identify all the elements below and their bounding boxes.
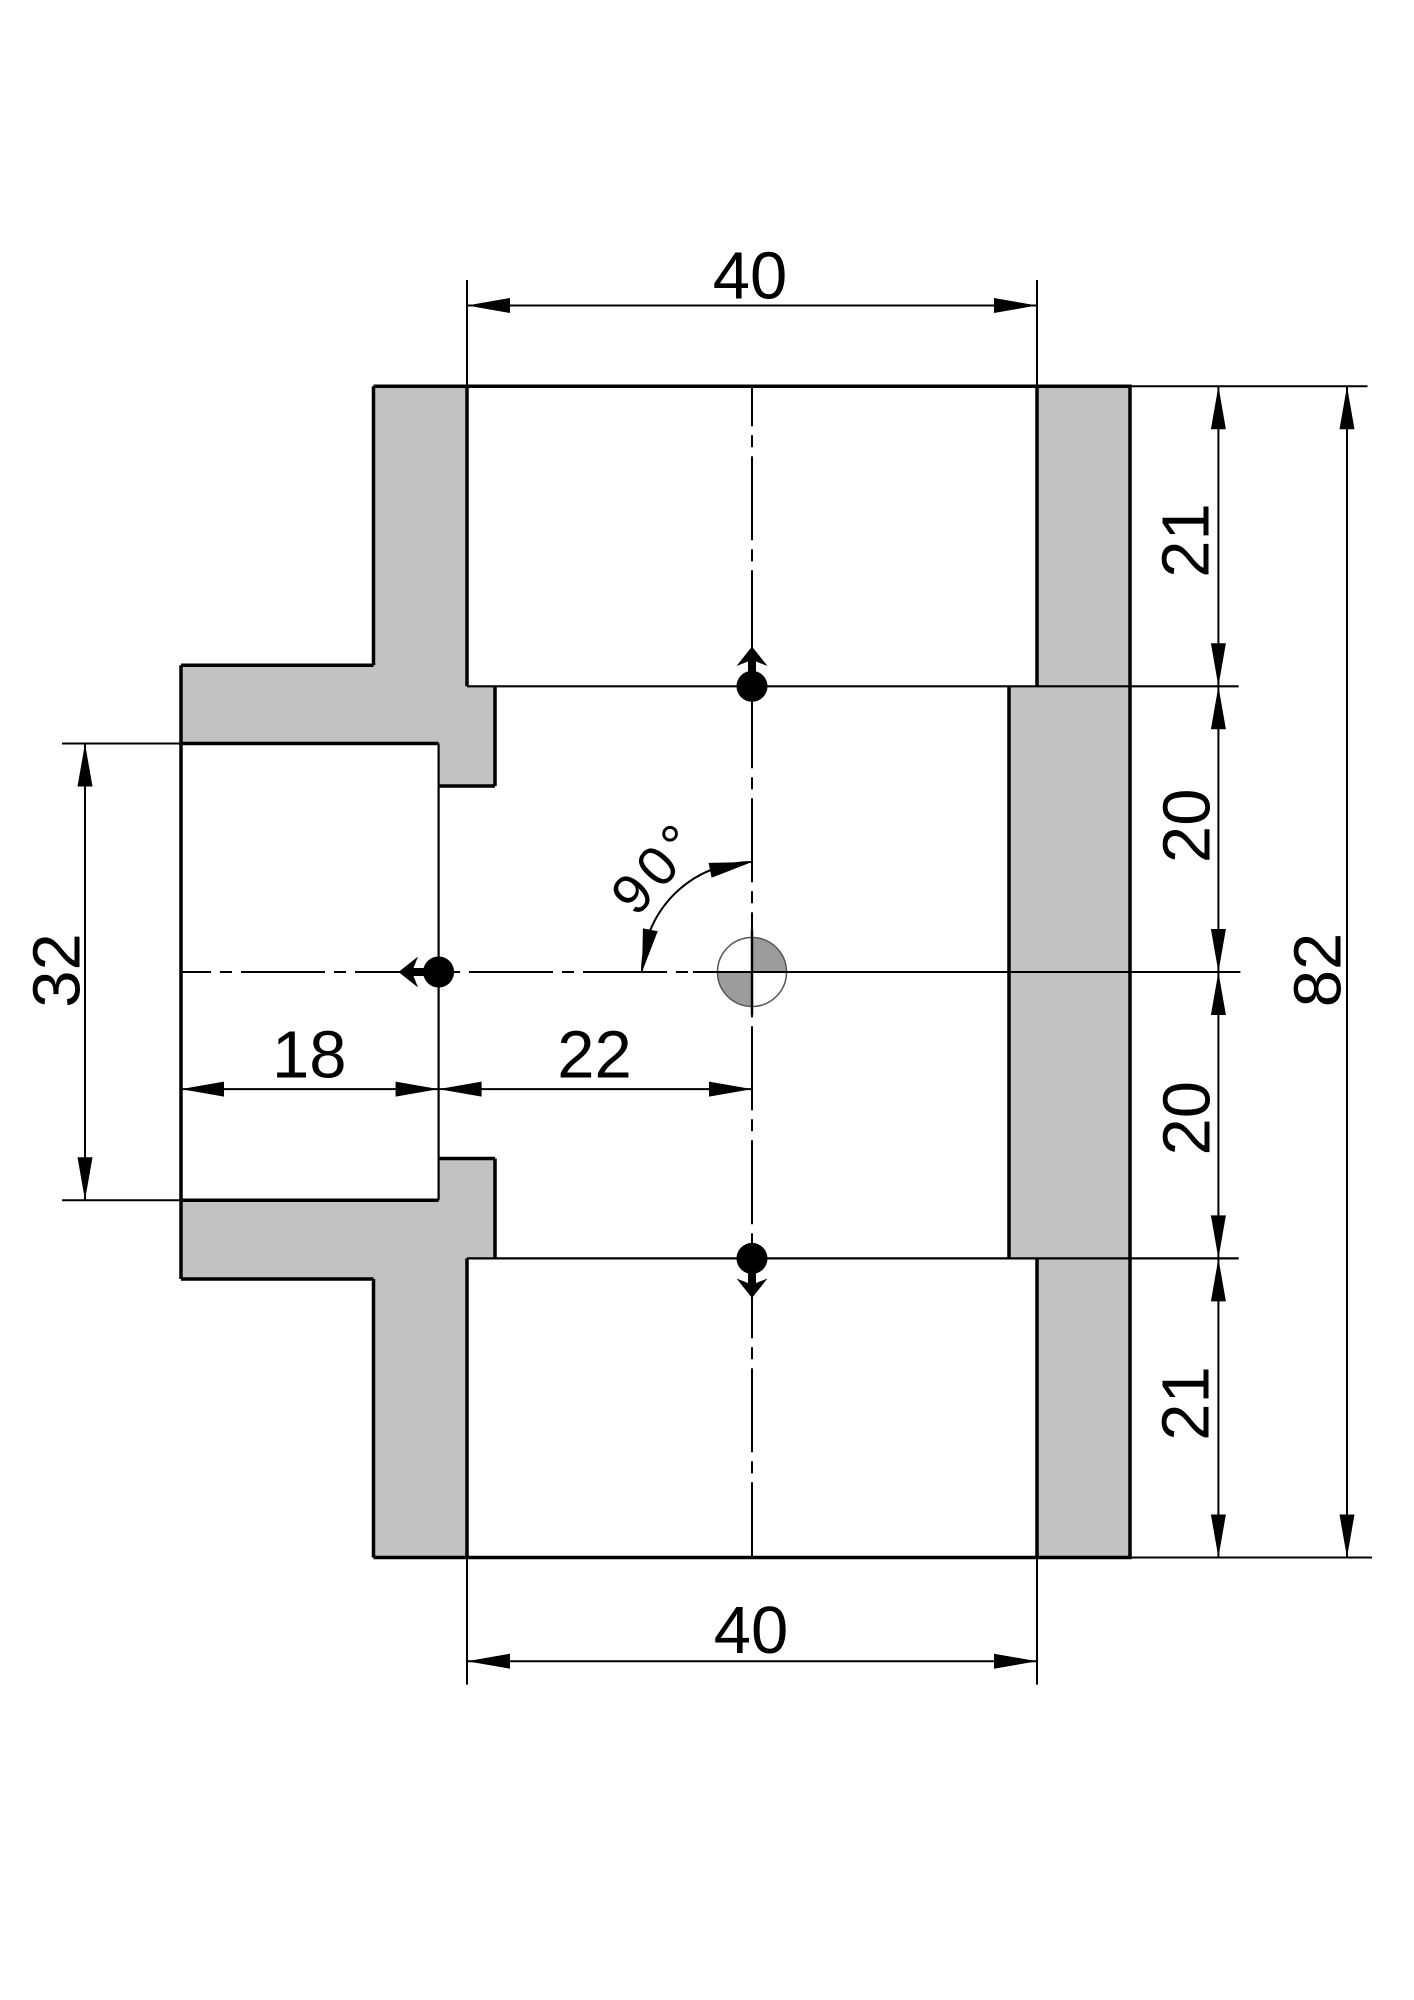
- svg-text:20: 20: [1149, 789, 1224, 864]
- svg-text:20: 20: [1149, 1081, 1224, 1156]
- svg-text:21: 21: [1148, 1366, 1223, 1441]
- svg-text:32: 32: [20, 933, 95, 1008]
- svg-text:82: 82: [1281, 933, 1356, 1008]
- svg-text:40: 40: [713, 239, 788, 314]
- svg-text:40: 40: [714, 1593, 789, 1668]
- svg-text:18: 18: [272, 1018, 347, 1093]
- svg-text:22: 22: [557, 1018, 632, 1093]
- svg-text:21: 21: [1148, 503, 1223, 578]
